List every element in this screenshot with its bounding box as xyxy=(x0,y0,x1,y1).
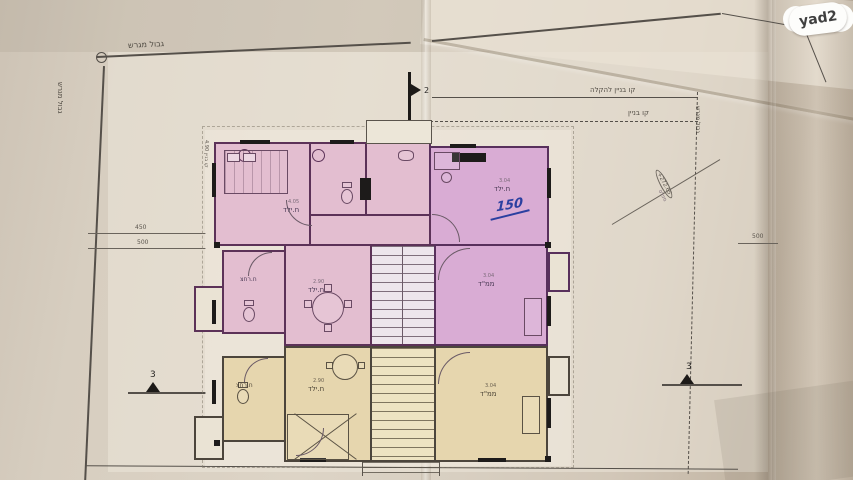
room-label: ח.רחצ xyxy=(236,382,253,389)
chair-icon xyxy=(358,362,365,369)
chair-icon xyxy=(304,300,312,308)
window-bar xyxy=(547,398,551,428)
section-left-triangle-icon xyxy=(146,382,160,392)
dim-right-line xyxy=(738,243,778,244)
balcony-left-mid xyxy=(194,286,224,332)
floorplan-photo: גבול מגרש גבול מגרש קו בניין להקלה קו בנ… xyxy=(0,0,853,480)
chair-icon xyxy=(324,324,332,332)
entrance-steps xyxy=(362,462,440,476)
toilet-icon xyxy=(342,182,352,188)
column-marker xyxy=(214,242,220,248)
desk-icon xyxy=(434,152,460,170)
stairwell-mid xyxy=(370,244,436,346)
room-dim: 3.04 xyxy=(485,383,496,389)
dim-line-500 xyxy=(88,248,206,249)
plot-boundary-right-label: גבול מגרש xyxy=(694,106,701,133)
room-dim: 3.04 xyxy=(483,273,494,279)
window-bar xyxy=(212,300,216,324)
building-line-relief xyxy=(432,97,698,98)
window-bar xyxy=(212,163,216,197)
pillow-icon xyxy=(243,153,256,162)
building-line xyxy=(420,121,698,122)
counter-block xyxy=(360,178,371,200)
plot-boundary-left-label: גבול מגרש xyxy=(56,82,64,114)
toilet-icon xyxy=(237,389,249,404)
section-left-number: 3 xyxy=(150,370,156,380)
yad2-logo-text: yad2 xyxy=(798,8,838,30)
dim-450-label: 450 xyxy=(135,224,146,231)
boundary-corner-circle xyxy=(96,52,107,63)
table-icon xyxy=(332,354,358,380)
corridor-top xyxy=(309,214,431,246)
section-top-number: 2 xyxy=(424,86,429,95)
column-marker xyxy=(545,242,551,248)
toilet-icon xyxy=(243,307,255,322)
section-top-triangle-icon xyxy=(411,84,421,96)
stairwell-bottom xyxy=(370,346,436,462)
toilet-icon xyxy=(244,300,254,306)
section-right-triangle-icon xyxy=(680,374,694,384)
window-bar xyxy=(212,380,216,404)
dim-line-450 xyxy=(88,233,206,234)
building-line-label: קו בניין xyxy=(628,109,649,117)
chair-icon xyxy=(344,300,352,308)
cabinet-icon xyxy=(524,298,542,336)
balcony-left-bottom xyxy=(194,416,224,460)
column-marker xyxy=(545,456,551,462)
building-line-relief-label: קו בניין להקלה xyxy=(590,86,635,94)
window-bar xyxy=(240,140,270,144)
room-label: ח.ילד xyxy=(308,385,324,393)
ledge-right-mid xyxy=(548,252,570,292)
chair-icon xyxy=(326,362,333,369)
cabinet-icon xyxy=(522,396,540,434)
section-right-line xyxy=(662,384,742,386)
room-label: ח.רחצ xyxy=(240,276,257,283)
room-label: ח.ילד xyxy=(494,185,510,193)
room-label: ממ"ד xyxy=(478,280,495,288)
shaft-top xyxy=(366,120,432,144)
ledge-right-bottom xyxy=(548,356,570,396)
room-label: ח.ילד xyxy=(283,206,299,214)
chair-icon xyxy=(441,172,452,183)
section-right-number: 3 xyxy=(686,362,692,372)
column-marker xyxy=(214,440,220,446)
table-icon xyxy=(312,292,344,324)
room-dim: 2.90 xyxy=(313,279,324,285)
plot-boundary-left xyxy=(84,66,104,480)
fan-symbol-icon xyxy=(312,149,325,162)
window-bar xyxy=(547,168,551,198)
room-dim: 4.05 xyxy=(288,199,299,205)
window-bar xyxy=(478,458,506,462)
toilet-icon xyxy=(341,189,353,204)
dim-right-500-label: 500 xyxy=(752,233,763,240)
window-bar xyxy=(330,140,354,144)
chair-icon xyxy=(324,284,332,292)
sink-icon xyxy=(398,150,414,161)
window-bar xyxy=(547,296,551,326)
window-bar xyxy=(450,144,476,148)
plot-boundary-top-label: גבול מגרש xyxy=(128,39,165,50)
stairwell-mid-divider xyxy=(402,246,403,344)
room-label: ממ"ד xyxy=(480,390,497,398)
room-dim: 3.04 xyxy=(499,178,510,184)
pillow-icon xyxy=(227,153,240,162)
dim-500-label: 500 xyxy=(137,239,148,246)
section-left-line xyxy=(128,392,206,394)
left-edge-note: קו בניין 4.90 xyxy=(203,140,209,168)
room-label: ח.ילד xyxy=(308,286,324,294)
room-dim: 2.90 xyxy=(313,378,324,384)
